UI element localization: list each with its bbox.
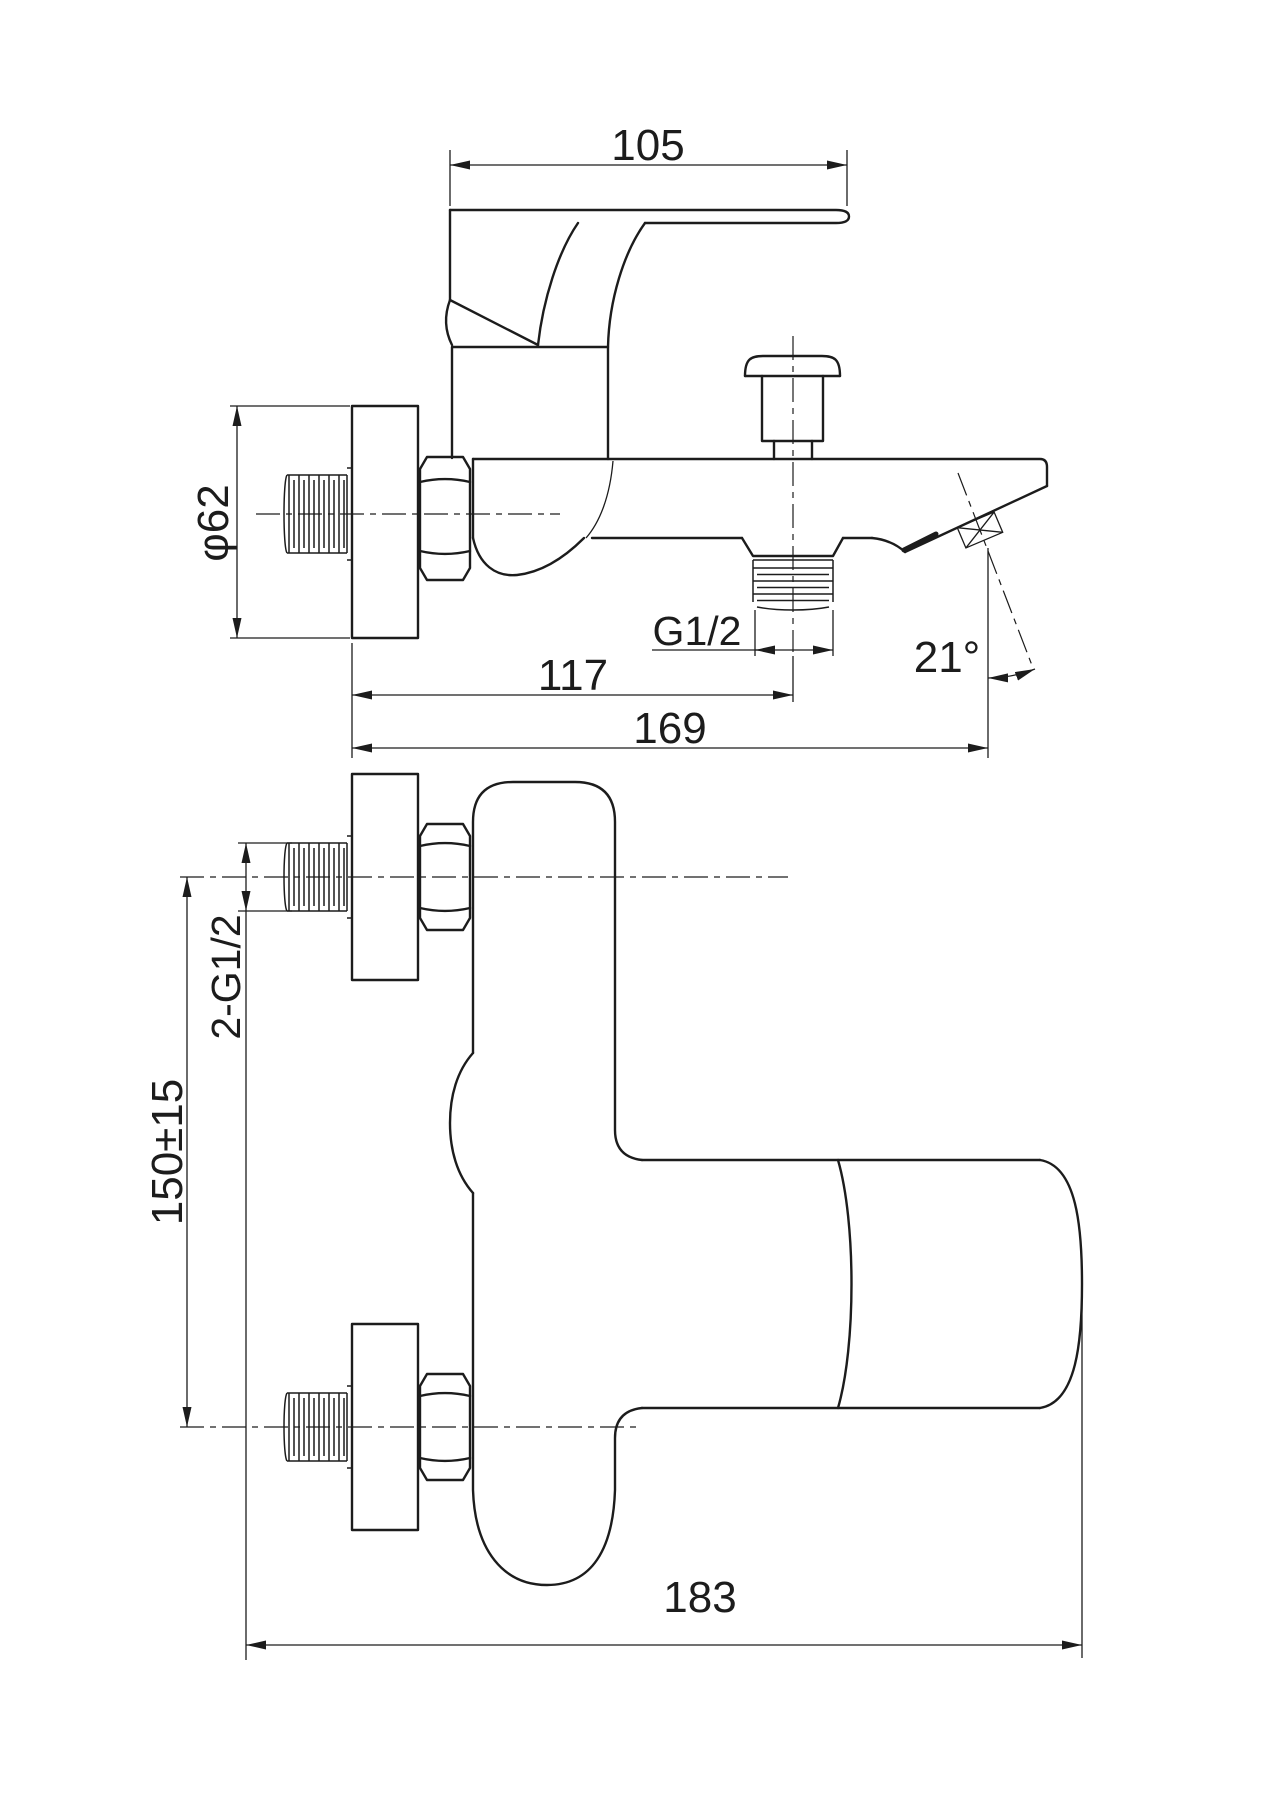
dim-label-183: 183 xyxy=(663,1573,736,1622)
side-view: 105 φ62 G1/2 117 169 xyxy=(189,121,1047,758)
bath-mixer-dimension-drawing: 105 φ62 G1/2 117 169 xyxy=(0,0,1273,1800)
body-heel xyxy=(473,538,584,575)
dim-outlet-offset: 117 xyxy=(352,643,793,758)
body-tube xyxy=(642,1160,1040,1408)
dim-label-105: 105 xyxy=(611,121,684,170)
spout-mouth xyxy=(904,534,936,550)
hex-nut xyxy=(420,457,470,580)
handle-lever xyxy=(446,210,849,347)
dim-label-169: 169 xyxy=(633,704,706,753)
dim-flange-diameter: φ62 xyxy=(189,406,350,638)
dim-body-width: 183 xyxy=(246,1292,1082,1658)
lower-inlet xyxy=(180,1324,640,1530)
dim-label-21deg: 21° xyxy=(914,633,981,682)
cartridge-housing xyxy=(452,347,608,459)
upper-inlet xyxy=(180,774,788,980)
technical-drawing-sheet: 105 φ62 G1/2 117 169 xyxy=(0,0,1273,1800)
dim-spout-angle: 21° xyxy=(914,633,1035,682)
dim-outlet-thread: G1/2 xyxy=(652,608,833,656)
dim-inlet-spacing: 150±15 xyxy=(143,877,192,1427)
dim-label-2g12: 2-G1/2 xyxy=(203,914,249,1039)
dim-label-117: 117 xyxy=(538,651,608,700)
front-view: 2-G1/2 150±15 183 xyxy=(143,774,1082,1660)
dim-label-g12: G1/2 xyxy=(653,608,742,654)
dim-label-150: 150±15 xyxy=(143,1079,192,1226)
dim-label-phi62: φ62 xyxy=(189,484,238,561)
wall-flange xyxy=(352,406,418,638)
faucet-body xyxy=(473,459,1047,575)
dim-handle-length: 105 xyxy=(450,121,847,206)
body-front xyxy=(450,782,1082,1585)
dim-inlet-thread: 2-G1/2 xyxy=(203,843,292,1660)
